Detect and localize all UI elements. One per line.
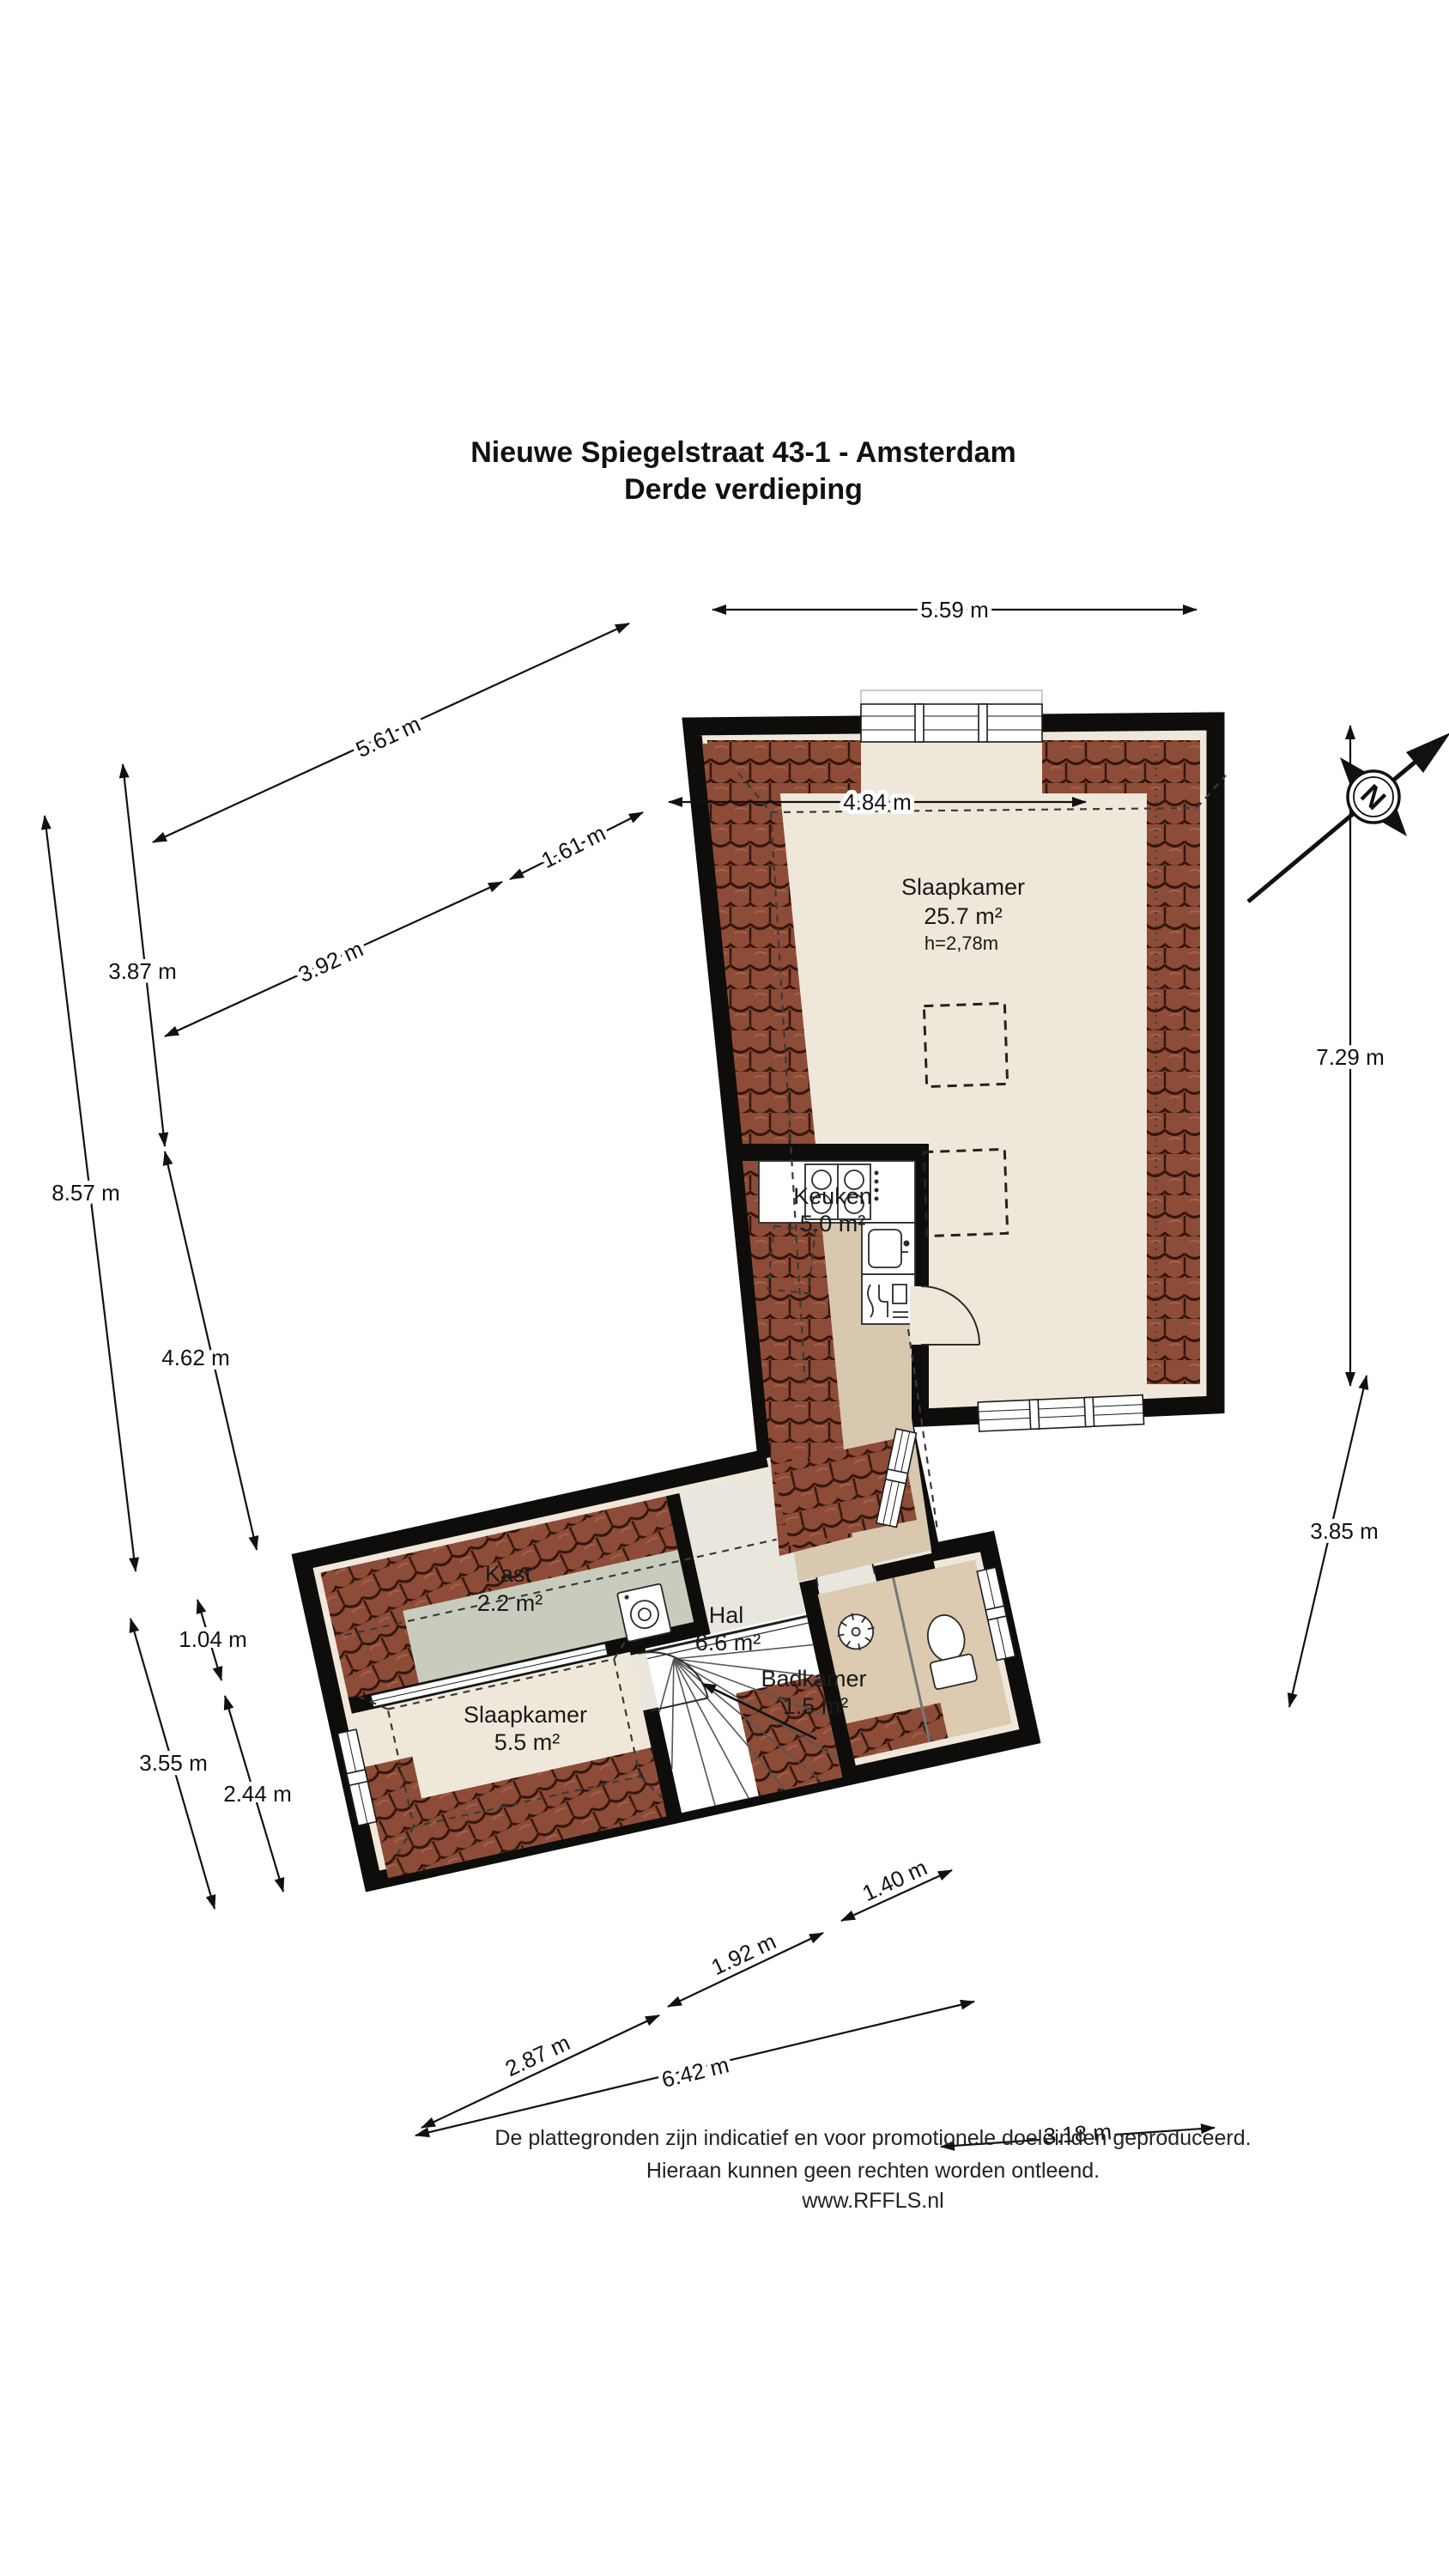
dim-1-92: 1.92 m [707,1928,780,1980]
dim-2-44: 2.44 m [223,1781,292,1807]
dim-3-92: 3.92 m [294,936,367,987]
footer: De plattegronden zijn indicatief en voor… [494,2126,1251,2213]
dim-3-55: 3.55 m [139,1750,208,1776]
compass-icon: N [1248,732,1449,902]
page-title-line2: Derde verdieping [624,473,863,506]
room-kast-name: Kast [485,1561,532,1587]
page-title-line1: Nieuwe Spiegelstraat 43-1 - Amsterdam [470,436,1016,469]
room-badkamer-name: Badkamer [761,1666,866,1692]
dim-4-62: 4.62 m [161,1345,230,1370]
dim-5-61: 5.61 m [352,711,425,762]
footer-line2: Hieraan kunnen geen rechten worden ontle… [646,2159,1100,2183]
dim-1-40: 1.40 m [858,1854,931,1906]
room-hal-name: Hal [709,1602,744,1628]
dim-7-29: 7.29 m [1316,1044,1385,1070]
room-slaapkamer-main-name: Slaapkamer [901,874,1025,900]
footer-line1: De plattegronden zijn indicatief en voor… [494,2126,1251,2150]
room-keuken-area: 5.0 m² [800,1211,866,1236]
dim-1-04: 1.04 m [179,1626,247,1652]
room-kast-area: 2.2 m² [477,1590,543,1616]
room-slaapkamer-main-area: 25.7 m² [924,903,1003,929]
footer-line3: www.RFFLS.nl [801,2189,943,2213]
room-hal-area: 6.6 m² [695,1630,761,1656]
dormer-window [861,690,1042,742]
dim-6-42: 6.42 m [659,2051,731,2093]
sink-icon [862,1223,915,1274]
dishwasher-icon [862,1274,915,1324]
dim-5-59: 5.59 m [920,597,989,623]
room-keuken-name: Keuken [793,1183,872,1209]
washing-machine-icon [617,1583,671,1642]
room-slaapkamer-small-area: 5.5 m² [494,1729,561,1755]
dim-3-87: 3.87 m [108,958,177,984]
room-slaapkamer-small-name: Slaapkamer [464,1702,587,1728]
floorplan-page: Nieuwe Spiegelstraat 43-1 - Amsterdam De… [0,0,1449,2576]
dim-8-57: 8.57 m [52,1180,120,1206]
dim-4-84: 4.84 m [843,789,912,815]
room-slaapkamer-main-height: h=2,78m [925,933,998,954]
dim-3-85: 3.85 m [1310,1518,1379,1544]
room-badkamer-area: 1.5 m² [783,1693,849,1719]
dim-1-61: 1.61 m [537,820,610,873]
slaapkamer-main-window [978,1395,1143,1431]
floorplan-svg: Nieuwe Spiegelstraat 43-1 - Amsterdam De… [0,0,1449,2576]
